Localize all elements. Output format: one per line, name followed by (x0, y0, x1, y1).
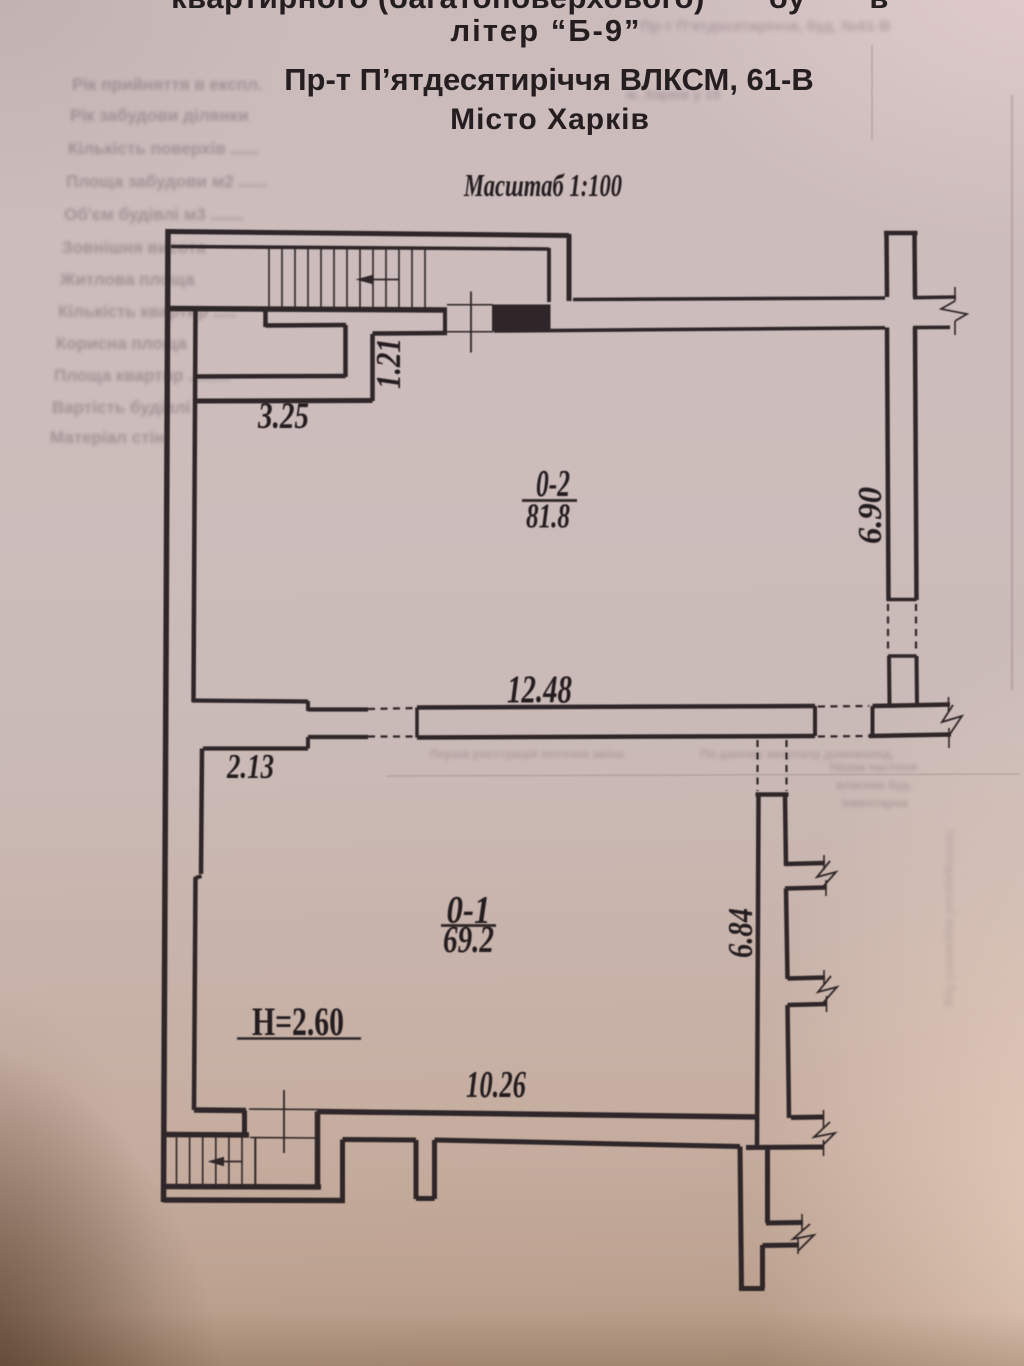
svg-text:1.21: 1.21 (369, 338, 408, 389)
svg-text:6.84: 6.84 (721, 908, 760, 958)
svg-text:2.13: 2.13 (226, 747, 274, 786)
svg-text:Масштаб 1:100: Масштаб 1:100 (463, 167, 622, 203)
svg-text:69.2: 69.2 (443, 919, 494, 961)
svg-text:12.48: 12.48 (507, 668, 572, 711)
svg-text:Н=2.60: Н=2.60 (252, 999, 344, 1044)
svg-text:6.90: 6.90 (852, 487, 889, 544)
svg-text:3.25: 3.25 (257, 396, 309, 437)
svg-text:10.26: 10.26 (466, 1064, 526, 1106)
svg-text:81.8: 81.8 (526, 497, 570, 536)
